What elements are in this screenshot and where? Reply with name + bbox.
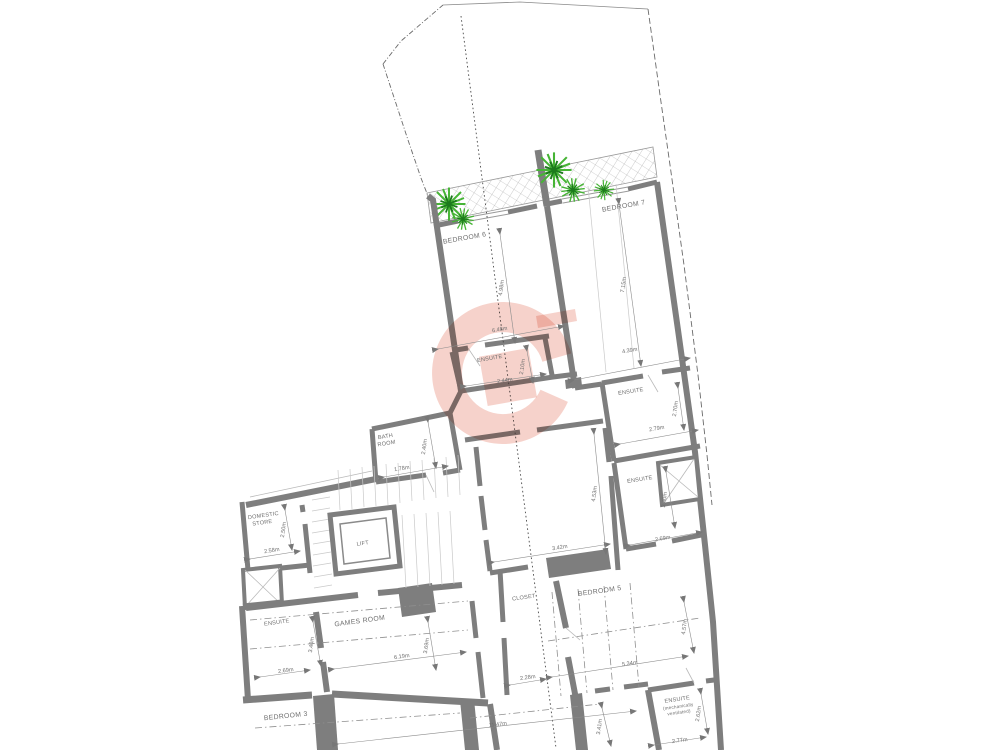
dim-ensuite-lower-height: 3.40m <box>308 636 316 653</box>
wall-ensuite-games-divider <box>316 612 327 692</box>
room-label-domestic-store: DOMESTIC STORE <box>248 511 281 528</box>
dim-lower-hall-height: 3.41m <box>596 718 604 735</box>
room-label-bedroom3: BEDROOM 3 <box>264 711 308 723</box>
wall-closet-divider <box>500 570 507 695</box>
dim-bedroom5-height: 4.57m <box>681 618 689 635</box>
walls <box>242 182 721 750</box>
dim-bedroom6-height: 4.98m <box>498 279 506 296</box>
boundary-line-top-left <box>383 5 443 64</box>
dim-games-height: 3.69m <box>423 637 431 654</box>
dim-store-height: 2.50m <box>280 521 288 538</box>
wall-bedroom5-left <box>556 581 576 699</box>
dim-ensuite-mv-width: 2.77m <box>672 737 689 745</box>
staircase <box>312 455 460 588</box>
dim-store-width: 2.58m <box>264 547 281 555</box>
room-label-bedroom6: BEDROOM 6 <box>442 231 487 246</box>
dim-bathroom-height: 2.40m <box>421 438 429 455</box>
room-label-ensuite-mid: ENSUITE <box>627 475 653 485</box>
room-label-bedroom5: BEDROOM 5 <box>578 585 622 598</box>
boundary-line-top <box>443 2 648 9</box>
wall-left-lower <box>242 606 248 700</box>
room-label-bathroom: BATH ROOM <box>376 433 396 449</box>
dim-ensuite-mid-width: 2.69m <box>655 535 672 544</box>
dim-games-width: 6.19m <box>394 653 411 661</box>
plant-icon <box>536 152 571 187</box>
wall-bedroom5-bottom <box>595 684 648 691</box>
stair-treads-right <box>402 511 454 588</box>
dim-ensuite-lower-width: 2.69m <box>278 667 295 675</box>
dim-ensuite-mv-height: 2.62m <box>695 705 703 722</box>
room-label-ensuite-mv: ENSUITE (mechanically ventilated) <box>662 695 695 717</box>
dim-void-height: 4.53m <box>591 485 599 502</box>
boundary-line-left <box>383 64 428 196</box>
door-leaf-ensuite7 <box>648 375 658 392</box>
wall-void-bottom-left <box>490 567 528 573</box>
room-label-games-room: GAMES ROOM <box>334 614 386 628</box>
wall-diagonal-street <box>246 479 376 505</box>
dim-ensuite7-width: 2.79m <box>649 425 666 434</box>
door-leaf-bathroom <box>426 475 434 492</box>
wall-ensuite-mv-top <box>648 680 714 690</box>
wall-void-left <box>476 447 490 571</box>
room-label-closet: CLOSET <box>512 593 537 602</box>
dim-bedroom7-height: 7.15m <box>620 276 628 293</box>
wall-mass-bed5-top <box>546 549 611 578</box>
watermark-arm <box>536 309 577 328</box>
wall-games-right <box>472 601 483 698</box>
wall-lower-vert-1 <box>460 699 479 750</box>
room-label-bedroom7: BEDROOM 7 <box>601 199 646 214</box>
stair-treads-left <box>312 497 332 588</box>
dim-lower-hall-width: 11.47m <box>488 721 507 729</box>
wall-lower-vert-3 <box>570 693 588 750</box>
room-label-ensuite7: ENSUITE <box>618 387 644 397</box>
joist-lines-bedroom5 <box>552 583 639 696</box>
wall-mass-games-top <box>398 583 436 617</box>
room-label-ensuite-lower: ENSUITE <box>264 618 290 628</box>
wall-bottom-band <box>243 694 488 703</box>
dim-bedroom7-width: 4.39m <box>622 347 639 356</box>
dim-bedroom5-width: 5.34m <box>622 660 639 668</box>
dim-bathroom-width: 1.78m <box>394 465 411 473</box>
walls-ensuite7 <box>575 368 700 461</box>
floor-plan-page: BEDROOM 6 BEDROOM 7 ENSUITE ENSUITE ENSU… <box>0 0 1000 750</box>
dim-ensuite7-height: 2.70m <box>672 400 680 417</box>
wall-ensuite-mv-left <box>648 690 659 750</box>
floor-plan-canvas: BEDROOM 6 BEDROOM 7 ENSUITE ENSUITE ENSU… <box>0 0 1000 750</box>
door-leaf-ensuite-mv <box>686 668 694 683</box>
watermark-logo <box>432 302 577 444</box>
